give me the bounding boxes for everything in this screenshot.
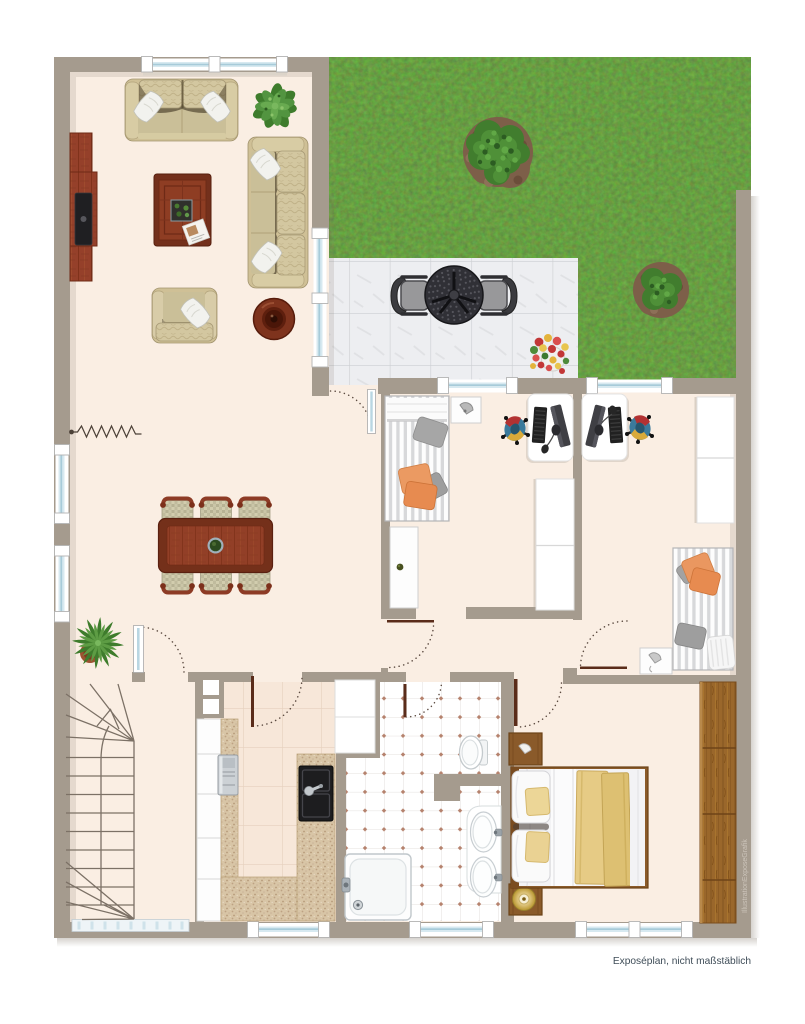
- svg-text:IllustrationExposeGrafik: IllustrationExposeGrafik: [742, 839, 749, 913]
- svg-text:Exposéplan, nicht maßstäblich: Exposéplan, nicht maßstäblich: [613, 956, 751, 967]
